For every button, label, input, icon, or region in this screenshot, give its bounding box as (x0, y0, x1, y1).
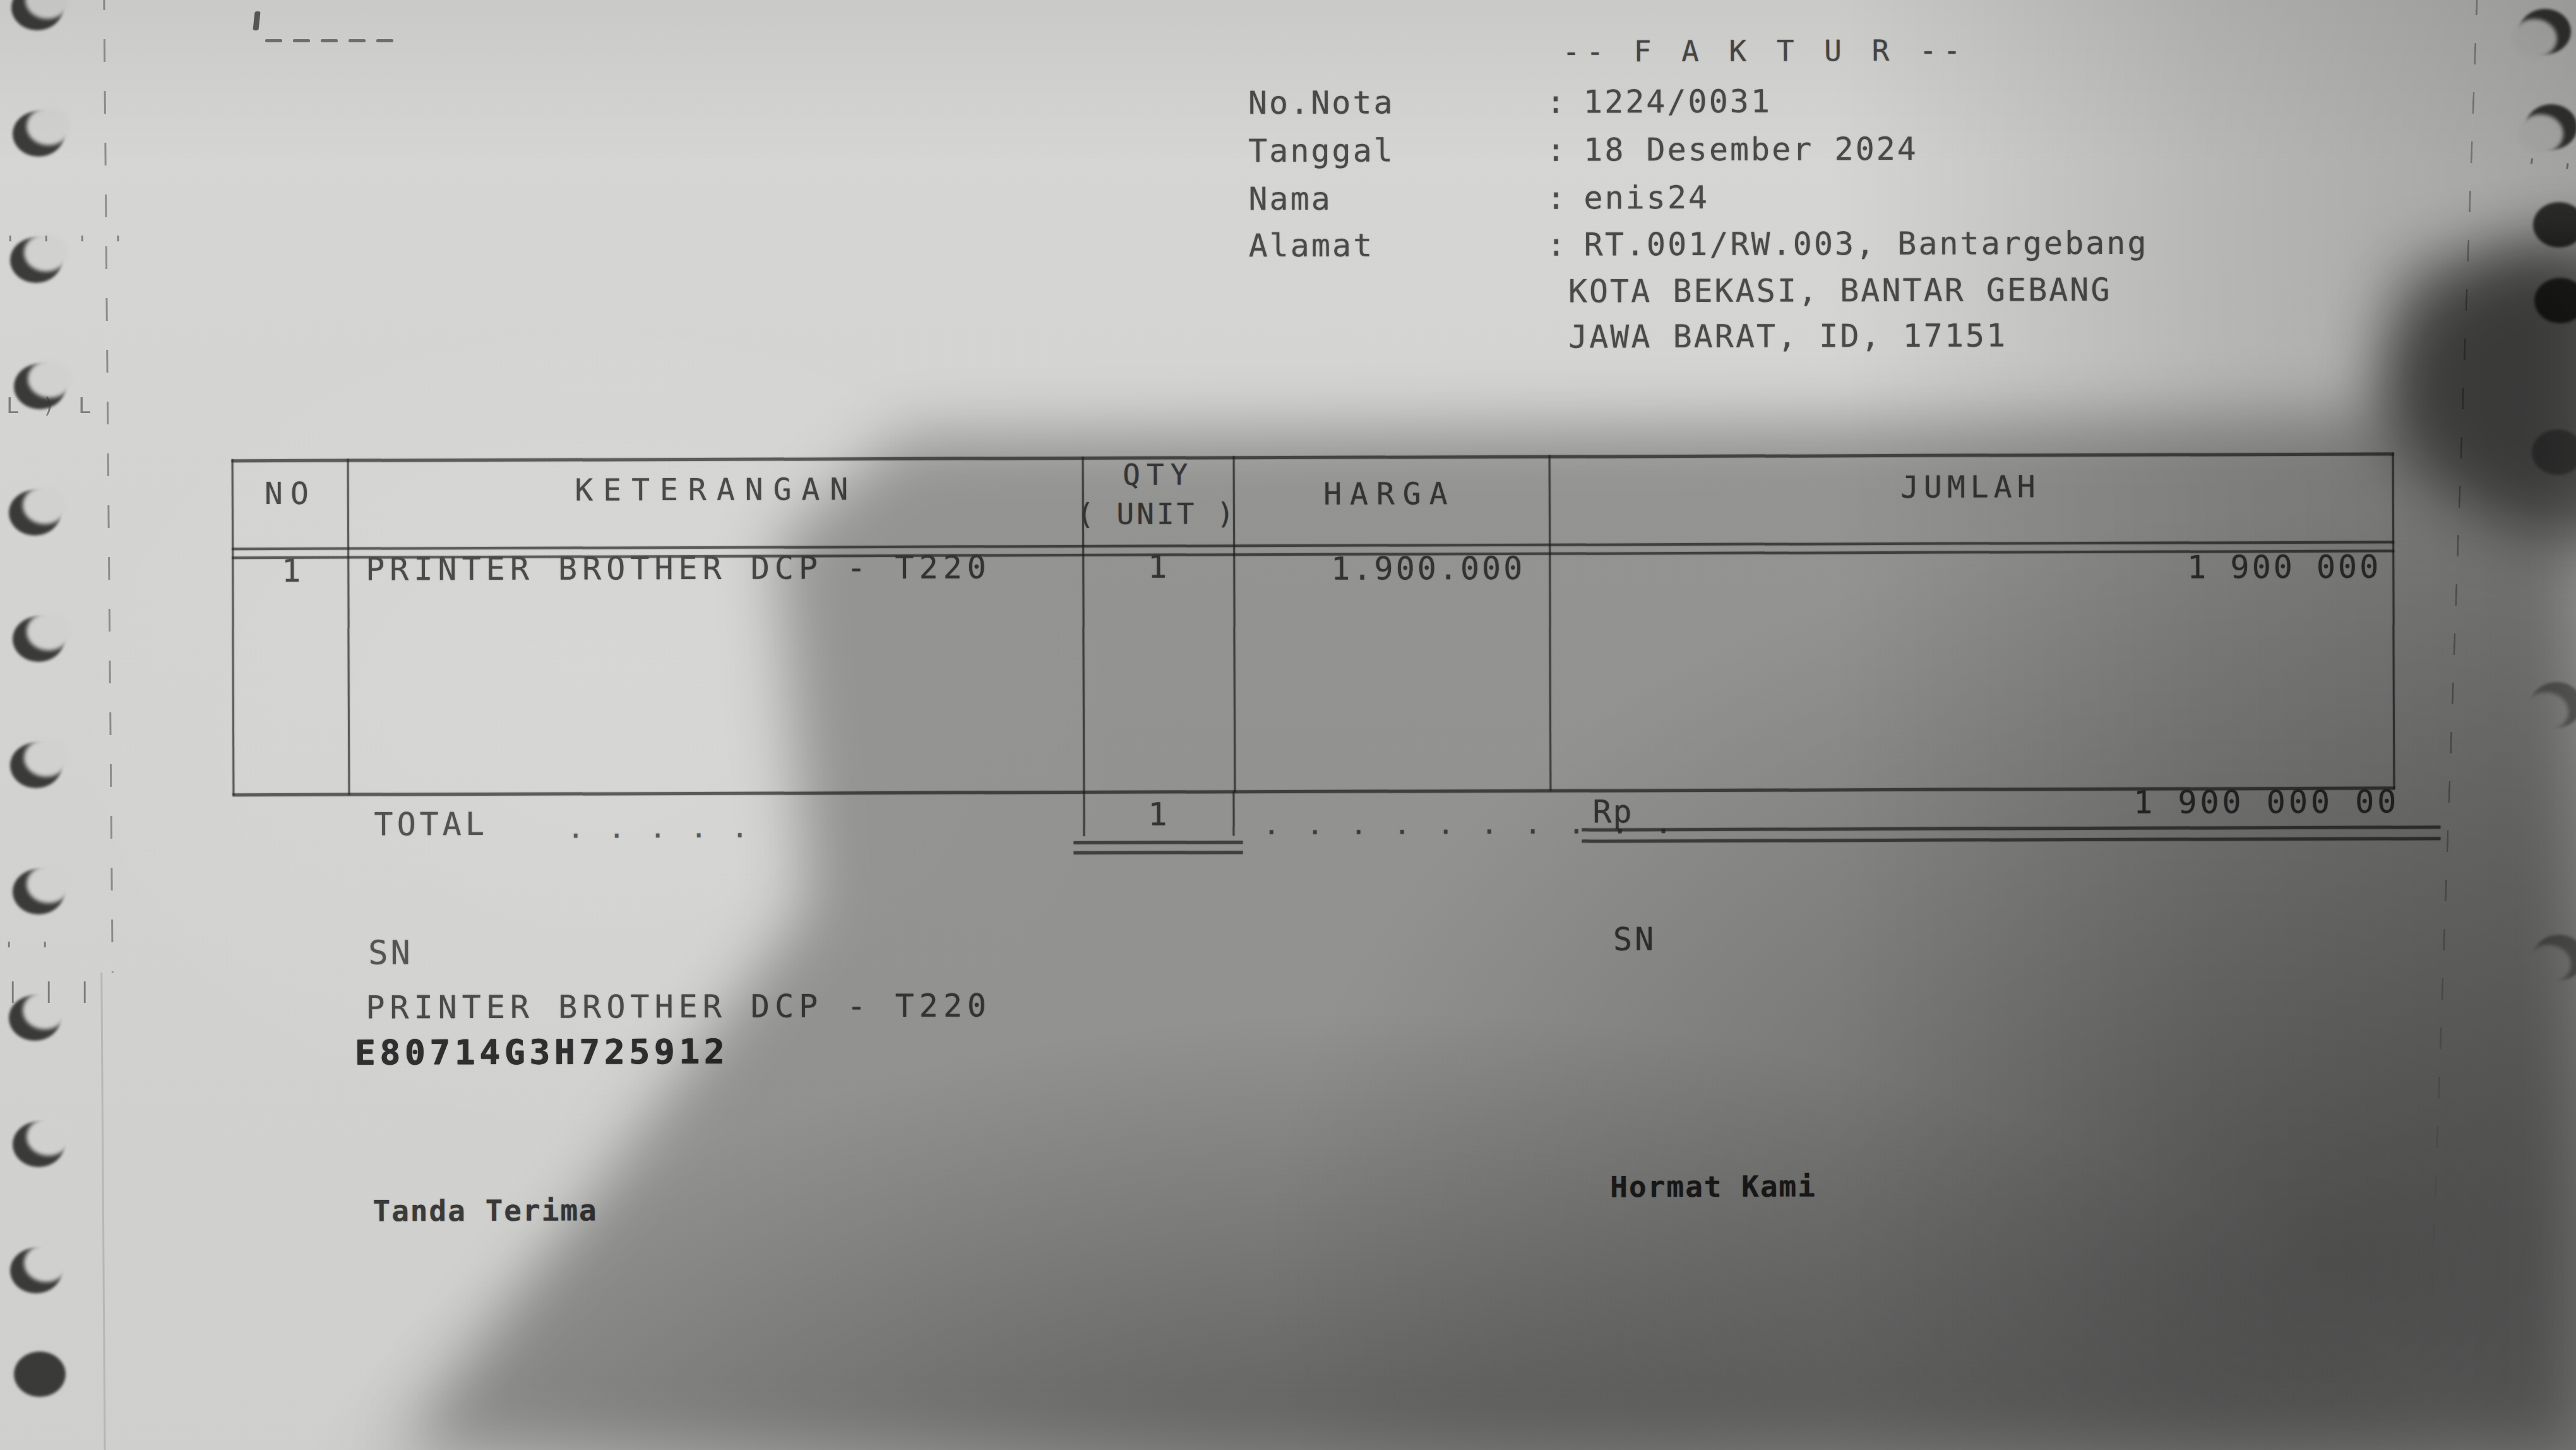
field-separator: : (1547, 227, 1568, 263)
table-divider-harga (1549, 455, 1552, 791)
table-border-left (232, 459, 235, 795)
row-cell-keterangan: PRINTER BROTHER DCP - T220 (366, 551, 991, 585)
table-border-bottom (232, 786, 2395, 796)
field-value-tanggal: 18 Desember 2024 (1583, 131, 1918, 169)
field-row-tanggal: Tanggal:18 Desember 2024 (1248, 133, 1918, 167)
total-amount-underline-2 (1582, 837, 2441, 842)
col-header-unit: ( UNIT ) (1076, 499, 1237, 529)
field-value-alamat: RT.001/RW.003, Bantargebang (1584, 225, 2149, 263)
row-cell-jumlah: 1 900 000 (2187, 551, 2381, 584)
row-cell-harga: 1.900.000 (1331, 553, 1525, 585)
address-line-3: JAWA BARAT, ID, 17151 (1568, 320, 2007, 352)
table-divider-no (347, 459, 350, 795)
table-header-rule (232, 541, 2394, 550)
total-qty-underline-2 (1074, 851, 1243, 854)
table-border-right (2392, 452, 2395, 788)
field-row-alamat: Alamat:RT.001/RW.003, Bantargebang (1249, 227, 2149, 261)
field-label-nama: Nama (1248, 183, 1546, 215)
total-qty-box-right (1232, 791, 1234, 836)
sn-label-left: SN (368, 936, 413, 969)
total-label-dots: . . . . . (567, 814, 752, 842)
sn-product: PRINTER BROTHER DCP - T220 (366, 990, 991, 1023)
invoice-title: -- F A K T U R -- (1563, 36, 1967, 66)
field-value-nonota: 1224/0031 (1583, 83, 1772, 121)
total-qty: 1 (1148, 799, 1167, 830)
field-separator: : (1546, 180, 1567, 217)
field-value-nama: enis24 (1583, 179, 1709, 217)
signature-right: Hormat Kami (1610, 1171, 1816, 1201)
signature-left: Tanda Terima (373, 1195, 597, 1225)
field-label-nonota: No.Nota (1248, 87, 1546, 119)
row-cell-qty: 1 (1148, 551, 1167, 583)
field-row-nama: Nama:enis24 (1248, 182, 1709, 215)
table-border-top (232, 452, 2394, 462)
total-amount-underline (1582, 825, 2441, 831)
field-label-alamat: Alamat (1249, 229, 1547, 261)
field-row-nonota: No.Nota:1224/0031 (1248, 86, 1772, 119)
sn-label-right: SN (1613, 923, 1656, 955)
field-label-tanggal: Tanggal (1248, 135, 1546, 167)
total-qty-underline (1074, 841, 1243, 844)
col-header-keterangan: KETERANGAN (575, 474, 858, 505)
total-label: TOTAL (374, 808, 488, 841)
field-separator: : (1546, 84, 1567, 121)
total-currency: Rp (1592, 796, 1633, 827)
address-line-2: KOTA BEKASI, BANTAR GEBANG (1568, 274, 2112, 308)
col-header-qty: QTY (1123, 460, 1194, 489)
sn-serial: E80714G3H725912 (355, 1035, 729, 1070)
field-separator: : (1546, 132, 1567, 169)
invoice-document: -- F A K T U R -- No.Nota:1224/0031 Tang… (0, 0, 2576, 1450)
total-amount: 1 900 000 00 (2133, 786, 2399, 818)
col-header-harga: HARGA (1323, 478, 1456, 509)
row-cell-no: 1 (282, 555, 301, 587)
total-qty-box-left (1083, 792, 1085, 836)
col-header-jumlah: JUMLAH (1900, 471, 2041, 502)
col-header-no: NO (265, 478, 316, 508)
